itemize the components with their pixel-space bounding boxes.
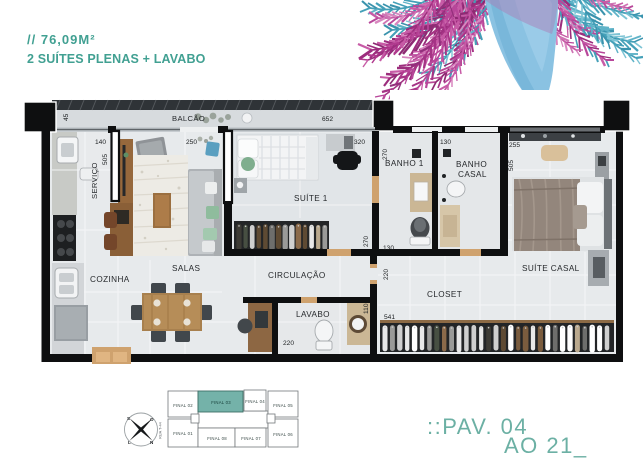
svg-text:652: 652	[322, 116, 333, 123]
svg-text:FINAL 05: FINAL 05	[273, 403, 293, 408]
svg-text:FINAL 04: FINAL 04	[245, 399, 265, 404]
svg-text:140: 140	[95, 139, 106, 146]
svg-text:BALCÃO: BALCÃO	[172, 114, 205, 123]
svg-text:110: 110	[363, 303, 370, 314]
svg-text:L: L	[128, 440, 131, 445]
svg-text:505: 505	[508, 160, 515, 171]
svg-text:CIRCULAÇÃO: CIRCULAÇÃO	[268, 270, 326, 280]
svg-text:SUÍTE 1: SUÍTE 1	[294, 193, 328, 203]
svg-text:FINAL 02: FINAL 02	[173, 403, 193, 408]
svg-text:SUÍTE CASAL: SUÍTE CASAL	[522, 263, 580, 273]
svg-text:FINAL 06: FINAL 06	[273, 432, 293, 437]
svg-text:FINAL 08: FINAL 08	[207, 436, 227, 441]
svg-text:220: 220	[283, 340, 294, 347]
svg-text:CASAL: CASAL	[458, 170, 487, 179]
svg-text:2 SUÍTES PLENAS + LAVABO: 2 SUÍTES PLENAS + LAVABO	[27, 51, 206, 66]
svg-text:541: 541	[384, 314, 395, 321]
svg-text:BANHO 1: BANHO 1	[385, 159, 424, 168]
svg-text:320: 320	[354, 139, 365, 146]
svg-text:45: 45	[63, 113, 70, 121]
svg-text:SALAS: SALAS	[172, 264, 201, 273]
svg-text:SERVIÇO: SERVIÇO	[90, 162, 99, 199]
svg-text:CLOSET: CLOSET	[427, 290, 462, 299]
svg-text:130: 130	[440, 139, 451, 146]
svg-text:AO 21_: AO 21_	[504, 433, 588, 458]
svg-text:255: 255	[509, 142, 520, 149]
svg-text:FINAL 03: FINAL 03	[211, 400, 231, 405]
svg-text:LAVABO: LAVABO	[296, 310, 330, 319]
svg-text:S: S	[127, 416, 130, 421]
svg-text:// 76,09M²: // 76,09M²	[27, 32, 96, 47]
svg-text:BANHO: BANHO	[456, 160, 487, 169]
svg-text:FINAL 07: FINAL 07	[241, 436, 261, 441]
svg-text:270: 270	[363, 236, 370, 247]
svg-text:250: 250	[186, 139, 197, 146]
svg-text:COZINHA: COZINHA	[90, 275, 130, 284]
svg-text:RUA T-44: RUA T-44	[158, 421, 163, 439]
svg-text:130: 130	[383, 245, 394, 252]
svg-text:O: O	[150, 417, 154, 422]
svg-text:220: 220	[383, 269, 390, 280]
svg-text:FINAL 01: FINAL 01	[173, 431, 193, 436]
svg-text:270: 270	[382, 149, 389, 160]
svg-text:505: 505	[102, 154, 109, 165]
